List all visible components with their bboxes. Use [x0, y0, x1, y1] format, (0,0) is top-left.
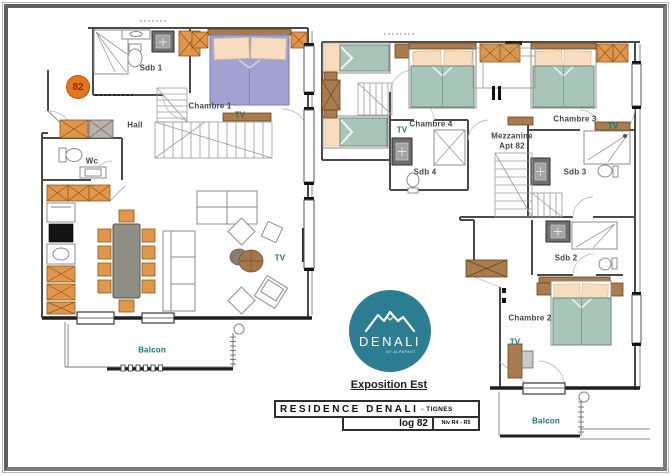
residence-location: - TIGNES [421, 406, 452, 413]
sdb4-fixtures [392, 130, 465, 193]
living-room-furniture [163, 191, 307, 314]
mezzanine-line2: Apt 82 [491, 141, 533, 151]
balcon-label-upper: Balcon [532, 417, 560, 426]
room-label-sdb4: Sdb 4 [414, 168, 437, 177]
level-indicator: Niv R4 - R5 [434, 418, 480, 431]
chambre1-bed [192, 29, 307, 105]
lower-floor-plan-drawing [35, 15, 325, 380]
hall-wardrobes [60, 120, 113, 138]
unit-number: log 82 [342, 418, 434, 431]
tv-label-living: TV [275, 254, 286, 263]
apartment-number-badge: 82 [66, 75, 90, 99]
room-label-sdb1: Sdb 1 [140, 64, 163, 73]
upper-balcony [499, 383, 650, 439]
room-label-chambre3: Chambre 3 [553, 115, 596, 124]
chambre4-bed [409, 43, 476, 108]
dining-table [98, 210, 155, 312]
chambre1-tv-sideboard [223, 113, 271, 121]
room-label-mezzanine: Mezzanine Apt 82 [491, 131, 533, 150]
tv-label-chambre1: TV [235, 111, 246, 120]
room-label-hall: Hall [127, 121, 142, 130]
floor-plan-sheet: Sdb 1 Chambre 1 TV Hall Wc TV Balcon 82 [0, 0, 671, 475]
tv-label-chambre4: TV [397, 126, 408, 135]
mountain-icon [362, 309, 418, 333]
room-label-sdb3: Sdb 3 [564, 168, 587, 177]
lower-balcony [65, 312, 244, 371]
logo-wordmark: DENALI [359, 334, 421, 349]
room-label-chambre4: Chambre 4 [409, 120, 452, 129]
bunk-room [322, 43, 392, 148]
title-block-row2: log 82 Niv R4 - R5 [274, 418, 480, 431]
chambre2-bed [508, 277, 623, 378]
exposition-label: Exposition Est [343, 379, 435, 391]
lower-windows [304, 43, 314, 271]
denali-logo: DENALI BY ALPAPART [349, 290, 431, 372]
upper-floor-plan-drawing [318, 30, 658, 462]
wc-fixtures [59, 148, 106, 178]
tv-label-chambre2: TV [510, 338, 521, 347]
title-block: RESIDENCE DENALI - TIGNES log 82 Niv R4 … [274, 400, 480, 431]
title-block-row1: RESIDENCE DENALI - TIGNES [274, 400, 480, 418]
sdb2-fixtures [546, 221, 617, 270]
room-label-chambre2: Chambre 2 [508, 314, 551, 323]
room-label-sdb2: Sdb 2 [555, 254, 578, 263]
chambre3-bed [531, 43, 596, 108]
upper-hall-closet [466, 260, 507, 277]
residence-name: RESIDENCE DENALI [280, 404, 418, 415]
logo-byline: BY ALPAPART [386, 350, 416, 354]
mezzanine-line1: Mezzanine [491, 131, 533, 141]
room-label-wc: Wc [86, 157, 98, 166]
sdb3-fixtures [531, 131, 630, 185]
tv-label-chambre3: TV [608, 122, 619, 131]
balcon-label-lower: Balcon [138, 346, 166, 355]
room-label-chambre1: Chambre 1 [188, 102, 231, 111]
